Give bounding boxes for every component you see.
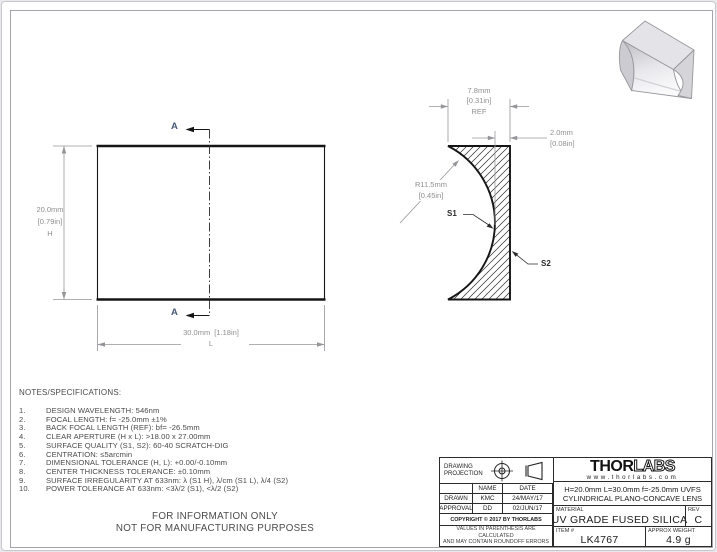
iso-view [619,21,694,99]
approval-name: DD [472,504,502,514]
material-label: MATERIAL [554,506,685,513]
notes-section: NOTES/SPECIFICATIONS: 1.DESIGN WAVELENGT… [19,388,419,494]
notes-header: NOTES/SPECIFICATIONS: [19,388,419,397]
drawn-name: KMC [472,494,502,504]
surface-2-label: S2 [540,259,552,268]
rev-label: REV [686,506,711,513]
lens-description-line2: CYLINDRICAL PLANO-CONCAVE LENS [563,494,702,503]
logo-cell: THORLABS www.thorlabs.com [553,457,712,482]
drawn-label: DRAWN [439,494,472,504]
rev-value: C [686,513,711,526]
rev-cell: REV C [685,506,712,527]
weight-label: APPROX WEIGHT [646,527,711,534]
item-number: LK4767 [554,534,645,546]
name-header: NAME [472,484,502,494]
projection-cell: DRAWING PROJECTION [439,457,553,484]
thickness-dimension-label: 7.8mm [0.31in] REF [448,86,510,117]
approval-date: 02/JUN/17 [502,504,553,514]
item-cell: ITEM # LK4767 [553,527,645,547]
title-block: DRAWING PROJECTION NAME DATE DRAWN KMC 2… [439,457,712,547]
item-label: ITEM # [554,527,645,534]
copyright-text: COPYRIGHT © 2017 BY THORLABS [439,514,553,526]
center-thickness-dimension-label: 2.0mm [0.08in] [550,128,575,149]
note-item: 10.POWER TOLERANCE AT 633nm: <3λ/2 (S1),… [19,485,419,494]
date-header: DATE [502,484,553,494]
thorlabs-url: www.thorlabs.com [587,474,679,481]
projection-label: DRAWING PROJECTION [440,464,488,478]
section-label-top: A [171,122,178,132]
lens-description-line1: H=20.0mm L=30.0mm f=-25.0mm UVFS [564,485,701,494]
material-cell: MATERIAL UV GRADE FUSED SILICA [553,506,685,527]
info-only-notice: FOR INFORMATION ONLY NOT FOR MANUFACTURI… [62,511,368,534]
drawing-sheet: A A 20.0mm [0.79in] H 30.0mm [1.18in] L … [1,1,716,551]
description-cell: H=20.0mm L=30.0mm f=-25.0mm UVFS CYLINDR… [553,482,712,506]
weight-cell: APPROX WEIGHT 4.9 g [645,527,712,547]
approval-label: APPROVAL [439,504,472,514]
front-view [53,127,326,351]
weight-value: 4.9 g [646,534,711,546]
radius-dimension-label: R11.5mm [0.45in] [404,180,458,201]
material-value: UV GRADE FUSED SILICA [554,513,685,526]
drawn-date: 24/MAY/17 [502,494,553,504]
third-angle-projection-icon [488,460,550,482]
length-dimension-label: 30.0mm [1.18in] L [178,328,244,349]
thorlabs-logo: THORLABS [590,459,675,474]
surface-1-label: S1 [446,209,458,218]
height-dimension-label: 20.0mm [0.79in] H [20,204,80,240]
section-label-bottom: A [171,308,178,318]
disclaimer-cell: VALUES IN PARENTHESIS ARE CALCULATED AND… [439,526,553,547]
